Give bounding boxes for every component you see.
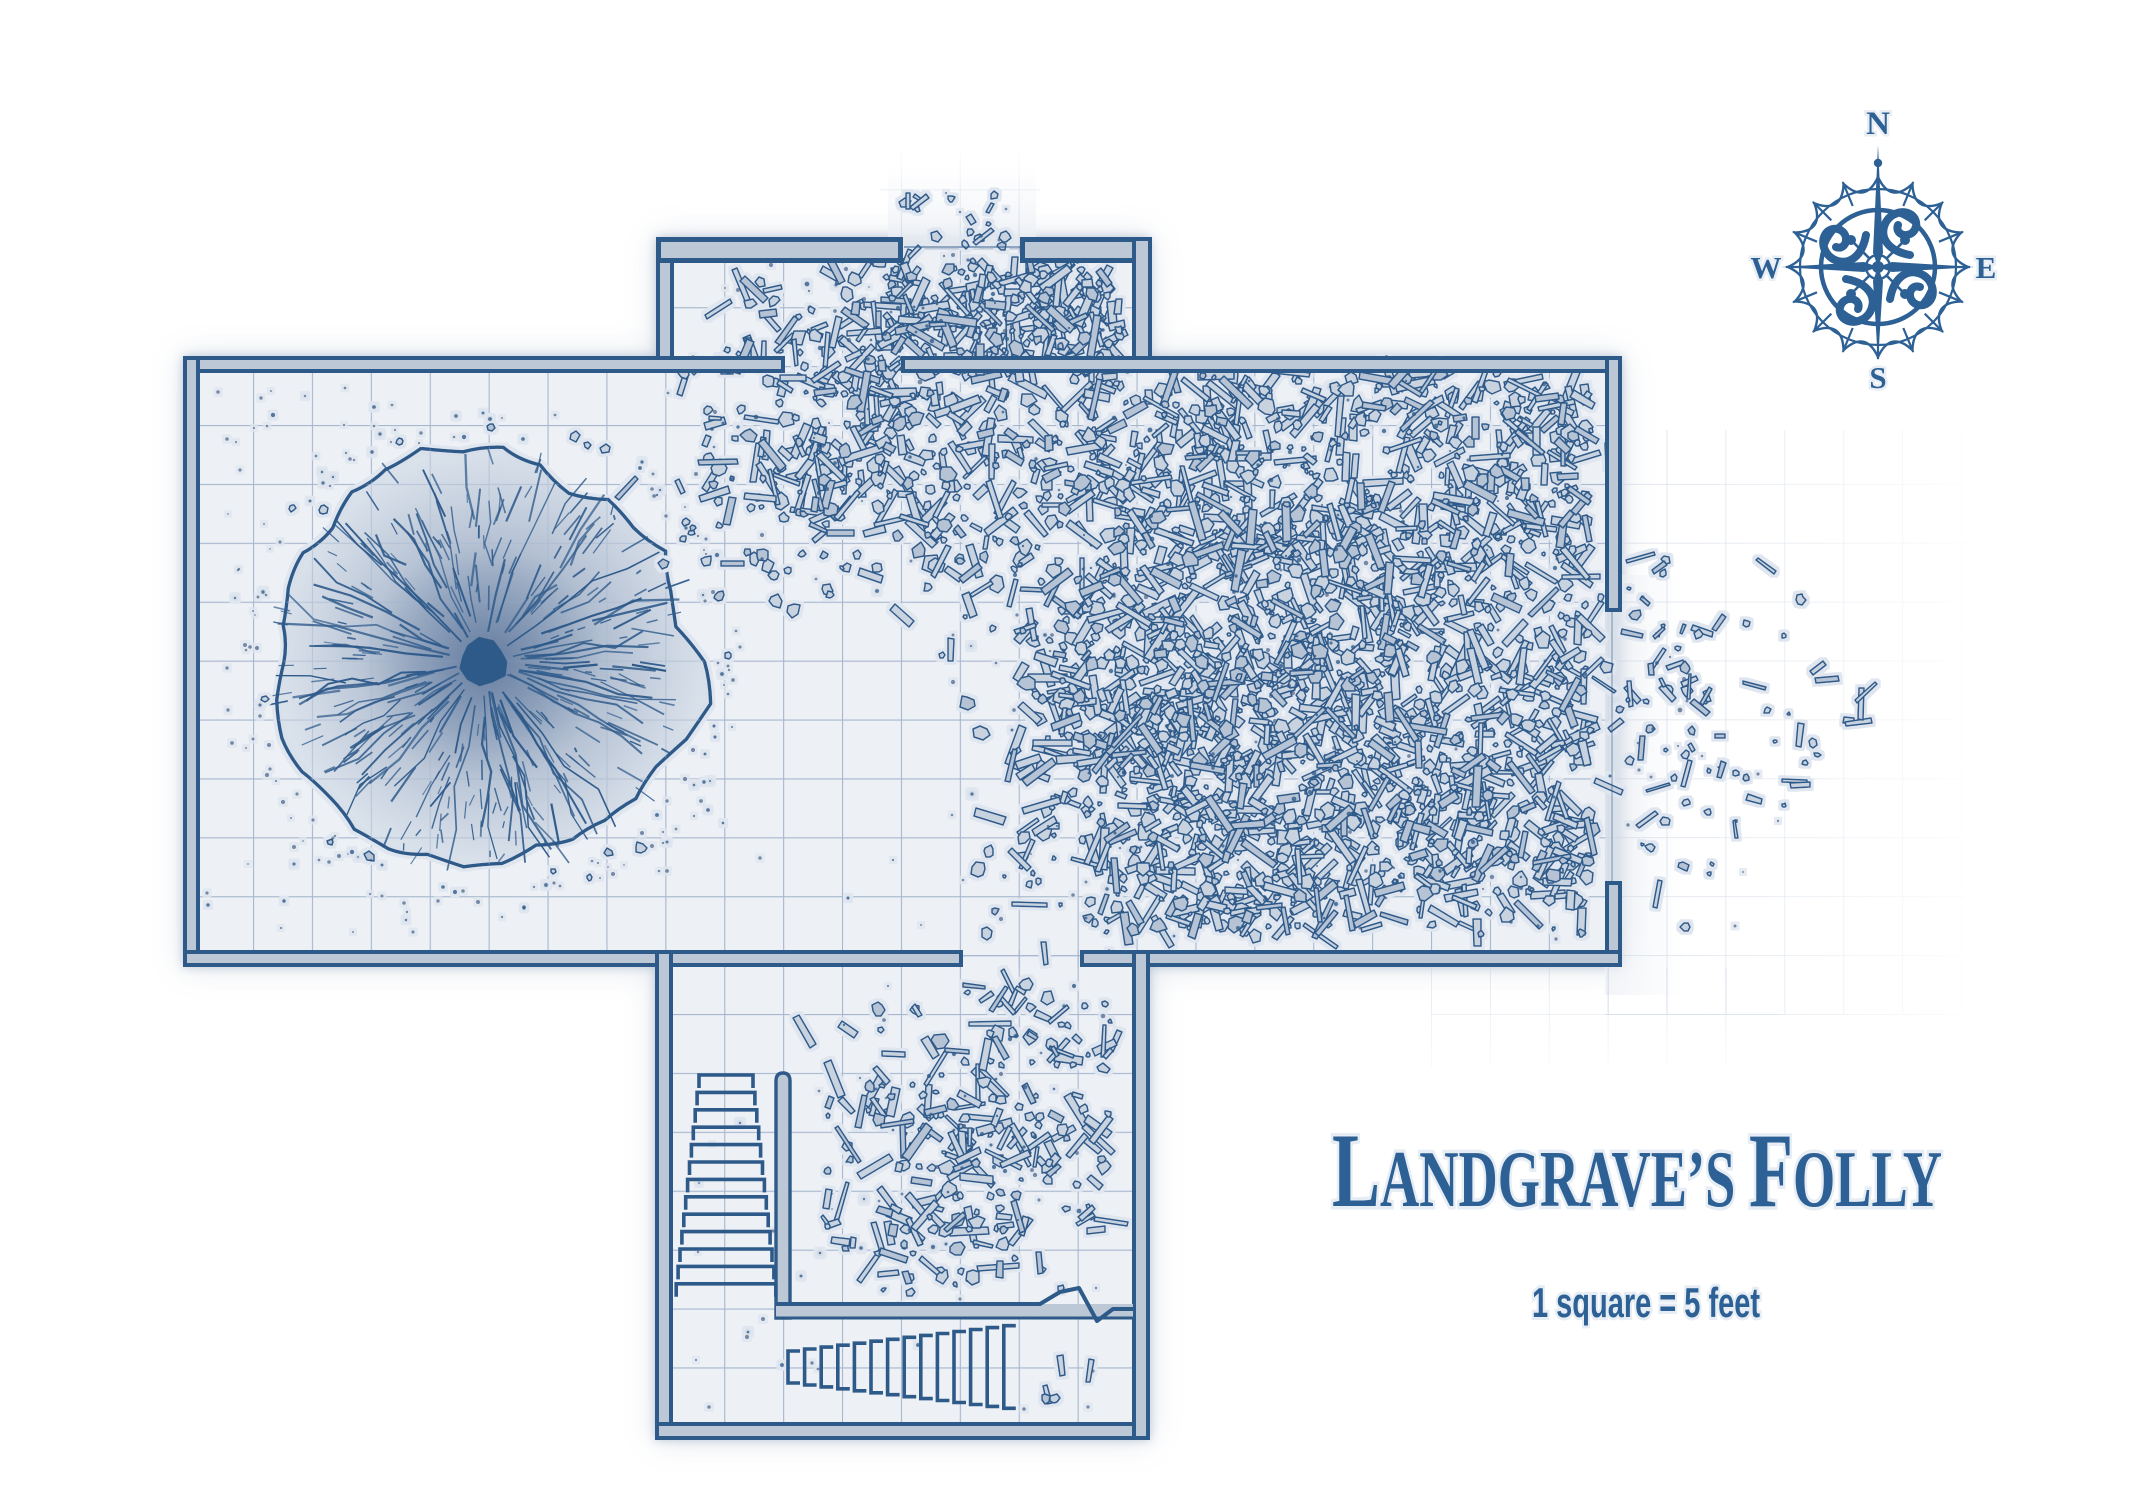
svg-text:W: W — [1751, 250, 1782, 285]
svg-text:1 square = 5 feet: 1 square = 5 feet — [1532, 1279, 1760, 1326]
svg-text:N: N — [1866, 106, 1890, 142]
svg-text:LANDGRAVE’S FOLLY: LANDGRAVE’S FOLLY — [1332, 1112, 1942, 1229]
svg-text:E: E — [1976, 250, 1997, 285]
svg-text:S: S — [1869, 360, 1886, 395]
